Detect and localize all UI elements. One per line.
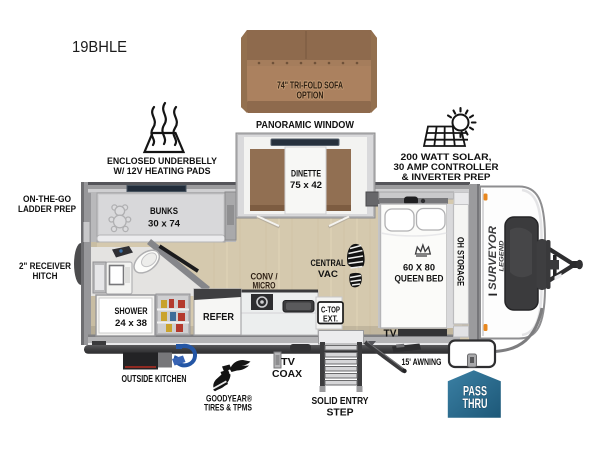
svg-text:& INVERTER PREP: & INVERTER PREP (402, 172, 492, 183)
svg-text:SURVEYOR: SURVEYOR (487, 226, 499, 290)
svg-text:TIRES & TPMS: TIRES & TPMS (204, 403, 252, 413)
svg-text:60 X 80: 60 X 80 (403, 263, 435, 274)
svg-text:BUNKS: BUNKS (150, 206, 178, 217)
svg-text:MICRO: MICRO (253, 281, 276, 291)
svg-text:SOLID ENTRY: SOLID ENTRY (312, 396, 369, 407)
svg-text:PANORAMIC WINDOW: PANORAMIC WINDOW (256, 119, 354, 131)
svg-text:DINETTE: DINETTE (291, 169, 321, 179)
svg-text:75 x 42: 75 x 42 (290, 180, 322, 190)
svg-text:24 x 38: 24 x 38 (115, 318, 147, 329)
svg-text:LADDER PREP: LADDER PREP (18, 204, 77, 215)
svg-text:15' AWNING: 15' AWNING (402, 357, 442, 368)
svg-text:OUTSIDE KITCHEN: OUTSIDE KITCHEN (122, 374, 187, 385)
svg-text:TV: TV (384, 329, 397, 340)
svg-text:ENCLOSED UNDERBELLY: ENCLOSED UNDERBELLY (107, 156, 218, 166)
svg-text:REFER: REFER (203, 311, 234, 323)
svg-text:HITCH: HITCH (33, 271, 58, 282)
svg-text:OH STORAGE: OH STORAGE (456, 237, 466, 286)
svg-text:OPTION: OPTION (297, 91, 324, 102)
svg-text:COAX: COAX (272, 369, 302, 380)
svg-text:STEP: STEP (327, 408, 354, 419)
svg-text:SHOWER: SHOWER (115, 306, 148, 317)
svg-text:EXT.: EXT. (323, 314, 338, 324)
svg-text:CENTRAL: CENTRAL (311, 258, 346, 269)
svg-text:W/ 12V HEATING PADS: W/ 12V HEATING PADS (114, 166, 211, 176)
svg-text:TV: TV (281, 357, 296, 368)
svg-text:VAC: VAC (318, 269, 338, 280)
svg-text:30 x 74: 30 x 74 (148, 219, 181, 230)
svg-text:THRU: THRU (463, 395, 488, 411)
svg-text:LEGEND: LEGEND (499, 240, 506, 271)
svg-text:QUEEN BED: QUEEN BED (395, 274, 444, 285)
svg-text:19BHLE: 19BHLE (72, 39, 127, 56)
